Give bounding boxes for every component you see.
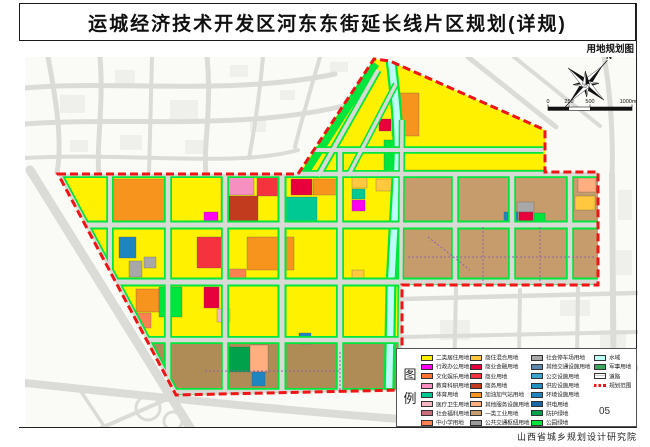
land-parcel [352, 200, 365, 211]
legend-column: 社会停车场用地其他交通设施用地公交设施用地供应设施用地环境设施用地供电用地防护绿… [531, 349, 594, 426]
legend-item: 教育科研用地 [421, 381, 470, 390]
legend-item: 商业金融用地 [470, 362, 531, 371]
legend-item: 一类工业用地 [470, 409, 531, 418]
plan-sheet: N02505001000m 运城经济技术开发区河东东街延长线片区规划(详规) 用… [0, 0, 650, 447]
legend-color-swatch [531, 420, 543, 426]
land-parcel [247, 237, 294, 270]
land-parcel [112, 179, 165, 226]
land-parcel [313, 179, 338, 195]
legend-item: 防护绿地 [531, 409, 594, 418]
legend-color-swatch [531, 401, 543, 407]
land-parcel [119, 237, 136, 258]
legend-color-swatch [421, 383, 433, 389]
legend-item-label: 供电用地 [546, 400, 568, 408]
title-box: 运城经济技术开发区河东东街延长线片区规划(详规) [19, 3, 636, 41]
legend-color-swatch [421, 410, 433, 416]
legend-item-label: 商住混合用地 [485, 354, 518, 362]
land-parcel [578, 178, 596, 192]
scale-label: 500 [585, 99, 594, 105]
land-parcel [250, 345, 268, 372]
legend-item: 道路 [594, 372, 636, 381]
legend-item-label: 公交设施用地 [546, 372, 579, 380]
land-parcel [144, 257, 156, 268]
legend-color-swatch [421, 401, 433, 407]
legend-item: 商业用地 [470, 372, 531, 381]
legend-color-swatch [594, 355, 606, 361]
land-parcel [129, 261, 142, 277]
legend-item: 商住混合用地 [470, 353, 531, 362]
legend-item-label: 一类工业用地 [485, 409, 518, 417]
legend-color-swatch [470, 410, 482, 416]
boundary-dash-symbol [594, 384, 606, 387]
legend-item-label: 供应设施用地 [546, 382, 579, 390]
legend-item-label: 体育用地 [436, 391, 458, 399]
land-parcel [226, 347, 250, 372]
scale-label: 1000m [620, 99, 637, 105]
legend-item-label: 社会停车场用地 [546, 354, 585, 362]
legend-title: 图例 [401, 363, 419, 426]
legend-item: 公共交通枢纽用地 [470, 418, 531, 427]
land-parcel [376, 179, 392, 191]
legend-item-label: 水域 [609, 354, 620, 362]
legend-color-swatch [421, 392, 433, 398]
legend-color-swatch [421, 364, 433, 370]
legend-item-label: 社会福利用地 [436, 409, 469, 417]
legend-color-swatch [531, 355, 543, 361]
legend-item-label: 二类居住用地 [436, 354, 469, 362]
legend-item: 文化娱乐用地 [421, 372, 470, 381]
legend-item: 体育用地 [421, 390, 470, 399]
legend-color-swatch [531, 410, 543, 416]
legend-item: 行政办公用地 [421, 362, 470, 371]
land-parcel [352, 189, 365, 199]
legend-item-label: 公园绿地 [546, 419, 568, 427]
legend-item-label: 防护绿地 [546, 409, 568, 417]
land-parcel [575, 196, 595, 210]
scale-label: 0 [546, 99, 549, 105]
legend-item: 水域 [594, 353, 636, 362]
land-parcel [136, 289, 159, 312]
legend-color-swatch [470, 364, 482, 370]
land-parcel [252, 372, 265, 386]
legend-item: 公园绿地 [531, 418, 594, 427]
land-parcel [145, 340, 402, 396]
legend-item-label: 加油加气站用地 [485, 391, 524, 399]
legend-item-label: 公共交通枢纽用地 [485, 419, 529, 427]
legend-color-swatch [470, 373, 482, 379]
legend-item: 社会停车场用地 [531, 353, 594, 362]
map-type-label: 用地规划图 [586, 41, 634, 55]
page-title: 运城经济技术开发区河东东街延长线片区规划(详规) [88, 9, 567, 36]
legend-item: 其他服务设施用地 [470, 399, 531, 408]
legend-color-swatch [470, 420, 482, 426]
legend-item-label: 医疗卫生用地 [436, 400, 469, 408]
legend-color-swatch [531, 364, 543, 370]
legend-color-swatch [421, 355, 433, 361]
legend-item-label: 其他服务设施用地 [485, 400, 529, 408]
legend-item-label: 道路 [609, 372, 620, 380]
land-parcel [379, 119, 391, 131]
legend-item: 二类居住用地 [421, 353, 470, 362]
legend-item-label: 商业金融用地 [485, 363, 518, 371]
land-parcel [352, 177, 367, 188]
sheet-number: 05 [599, 406, 610, 417]
legend-item-label: 规划范围 [609, 382, 631, 390]
legend-color-swatch [470, 401, 482, 407]
legend-color-swatch [470, 392, 482, 398]
legend-item-label: 军事用地 [609, 363, 631, 371]
legend-item: 公交设施用地 [531, 372, 594, 381]
legend-item-label: 环境设施用地 [546, 391, 579, 399]
road-symbol [594, 373, 606, 379]
land-parcel [204, 287, 219, 308]
land-parcel [517, 202, 534, 212]
legend-color-swatch [531, 373, 543, 379]
scale-label: 250 [564, 99, 573, 105]
legend-color-swatch [594, 364, 606, 370]
legend-item-label: 商务用地 [485, 382, 507, 390]
legend-item-label: 教育科研用地 [436, 382, 469, 390]
institute-name: 山西省城乡规划设计研究院 [517, 430, 637, 443]
legend-color-swatch [470, 355, 482, 361]
legend-item: 环境设施用地 [531, 390, 594, 399]
legend-item-label: 行政办公用地 [436, 363, 469, 371]
legend-item: 中小学用地 [421, 418, 470, 427]
legend-item-label: 商业用地 [485, 372, 507, 380]
legend-column: 二类居住用地行政办公用地文化娱乐用地教育科研用地体育用地医疗卫生用地社会福利用地… [421, 349, 470, 426]
legend-column: 商住混合用地商业金融用地商业用地商务用地加油加气站用地其他服务设施用地一类工业用… [470, 349, 531, 426]
legend-item: 社会福利用地 [421, 409, 470, 418]
legend-item: 医疗卫生用地 [421, 399, 470, 408]
legend-color-swatch [421, 373, 433, 379]
legend-item: 供电用地 [531, 399, 594, 408]
legend-color-swatch [421, 420, 433, 426]
legend-item-label: 其他交通设施用地 [546, 363, 590, 371]
land-parcel [291, 179, 312, 195]
legend-item: 商务用地 [470, 381, 531, 390]
legend-item: 其他交通设施用地 [531, 362, 594, 371]
legend-item: 加油加气站用地 [470, 390, 531, 399]
legend-item: 供应设施用地 [531, 381, 594, 390]
legend-item-label: 中小学用地 [436, 419, 464, 427]
legend-color-swatch [470, 383, 482, 389]
legend-item: 军事用地 [594, 362, 636, 371]
legend-item: 规划范围 [594, 381, 636, 390]
legend-item-label: 文化娱乐用地 [436, 372, 469, 380]
legend-color-swatch [531, 383, 543, 389]
legend-color-swatch [531, 392, 543, 398]
